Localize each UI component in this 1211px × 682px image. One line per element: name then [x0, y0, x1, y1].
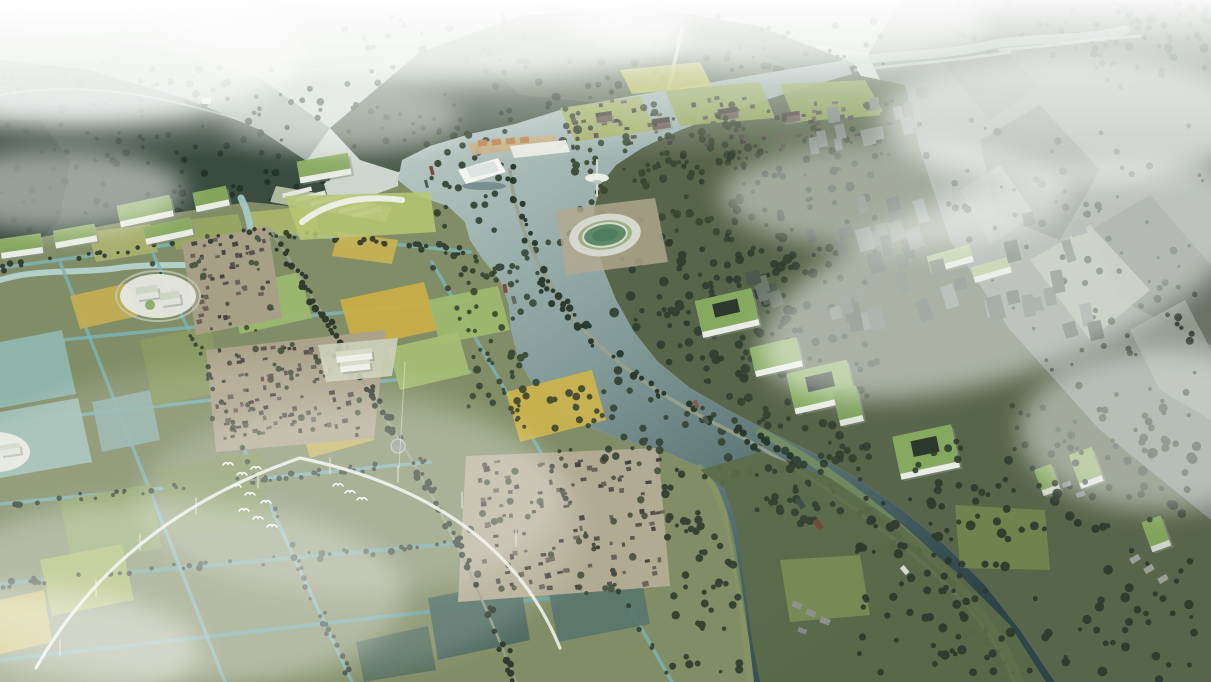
southeast-forest-tree	[1097, 597, 1104, 604]
southeast-forest-tree	[1103, 640, 1109, 646]
southeast-forest-tree	[1134, 606, 1142, 614]
riverfront-forest-south-tree	[772, 469, 777, 474]
diagonal-road-trees-tree	[505, 668, 510, 673]
southeast-forest-tree	[928, 522, 932, 526]
west-riverbank-trees-3-tree	[576, 416, 583, 423]
village-houses-mid-block	[308, 349, 313, 354]
park-forest-tree	[657, 311, 662, 316]
village-trees-south-tree	[654, 467, 661, 474]
southeast-forest-tree	[1003, 505, 1011, 513]
rendering-canvas	[0, 0, 1211, 682]
west-riverbank-trees-2-tree	[535, 271, 539, 275]
riverfront-forest-south-tree	[755, 507, 760, 512]
west-riverbank-trees-4-tree	[719, 670, 723, 674]
southeast-forest-tree	[1153, 591, 1158, 596]
southeast-forest-tree	[975, 514, 980, 519]
park-forest-tree	[614, 366, 623, 375]
park-forest-tree	[718, 356, 724, 362]
west-riverbank-trees-3-tree	[646, 445, 652, 451]
diagonal-road-trees-tree	[329, 319, 336, 326]
hedgerow-north-tree	[102, 254, 107, 259]
southeast-forest-tree	[989, 649, 997, 657]
village-houses-mid-block	[270, 345, 275, 349]
village-trees-mid-tree	[290, 342, 295, 347]
hedgerow-north-tree	[209, 239, 213, 243]
southeast-forest-tree	[907, 574, 916, 583]
west-riverbank-trees-tree	[481, 201, 488, 208]
west-riverbank-trees-2-tree	[483, 273, 489, 279]
village-trees-north-tree	[236, 264, 239, 267]
southeast-forest-tree	[958, 561, 965, 568]
west-riverbank-trees-tree	[442, 224, 447, 229]
riverfront-forest-south-tree	[862, 442, 871, 451]
village-trees-mid-tree	[278, 347, 285, 354]
village-houses-south-block	[611, 554, 617, 560]
west-riverbank-trees-3-tree	[572, 393, 580, 401]
southeast-forest-tree	[960, 613, 969, 622]
park-forest-tree	[817, 247, 822, 252]
riverfront-forest-south-tree	[817, 469, 823, 475]
hedgerow-north-tree	[135, 245, 140, 250]
park-forest-tree	[571, 167, 579, 175]
west-riverbank-trees-4-tree	[695, 510, 701, 516]
west-riverbank-trees-tree	[491, 227, 497, 233]
park-forest-tree	[764, 422, 772, 430]
village-houses-south-block	[591, 467, 597, 472]
west-riverbank-trees-2-tree	[508, 281, 514, 287]
west-riverbank-trees-3-tree	[627, 387, 633, 393]
west-riverbank-trees-tree	[484, 194, 488, 198]
west-riverbank-trees-4-tree	[722, 626, 726, 630]
west-riverbank-trees-tree	[470, 268, 476, 274]
southeast-forest-tree	[1010, 403, 1015, 408]
diagonal-road-trees-tree	[303, 274, 308, 279]
riverside-road-trees-tree	[612, 355, 616, 359]
southeast-forest-tree	[944, 444, 952, 452]
town-trees-tree	[677, 160, 681, 164]
southeast-forest-tree	[997, 528, 1007, 538]
village-houses-north-block	[220, 274, 225, 278]
hedgerow-north-tree	[18, 259, 24, 265]
southeast-forest-tree	[955, 482, 962, 489]
park-forest-tree	[732, 217, 737, 222]
village-trees-north-tree	[225, 302, 229, 306]
riverfront-forest-south-tree	[837, 507, 844, 514]
west-riverbank-trees-4-tree	[667, 484, 673, 490]
park-forest-tree	[686, 310, 691, 315]
southeast-forest-tree	[1187, 558, 1194, 565]
park-forest-tree	[700, 406, 705, 411]
southeast-forest-tree	[984, 655, 990, 661]
hedgerow-north-tree	[242, 229, 246, 233]
southeast-forest-tree	[989, 667, 997, 675]
park-forest-tree	[740, 335, 746, 341]
park-forest-tree	[757, 420, 762, 425]
southeast-forest-tree	[1103, 565, 1113, 575]
left-mountain-trees-tree	[201, 170, 208, 177]
meadow-clearing	[780, 555, 870, 622]
southeast-forest-tree	[1064, 655, 1068, 659]
west-riverbank-trees-4-tree	[661, 490, 669, 498]
southeast-forest-tree	[956, 519, 961, 524]
riverfront-forest-south-tree	[858, 477, 862, 481]
riverside-road-trees-tree	[510, 164, 516, 170]
hedgerow-north-tree	[283, 230, 289, 236]
park-forest-tree	[659, 175, 667, 183]
southeast-forest-tree	[881, 501, 886, 506]
southeast-forest-tree	[935, 479, 943, 487]
southeast-forest-tree	[899, 581, 904, 586]
southeast-forest-tree	[1044, 629, 1053, 638]
village-trees-north-tree	[244, 325, 249, 330]
west-riverbank-trees-4-tree	[669, 663, 676, 670]
southeast-forest-tree	[923, 586, 931, 594]
riverfront-forest-south-tree	[765, 464, 773, 472]
hedgerow-steep-2-tree	[515, 408, 520, 413]
west-riverbank-trees-3-tree	[551, 425, 558, 432]
southeast-forest-tree	[930, 449, 937, 456]
riverside-road-trees-tree	[773, 445, 780, 452]
west-riverbank-trees-4-tree	[723, 581, 729, 587]
park-forest-tree	[705, 378, 711, 384]
west-riverbank-trees-2-tree	[515, 279, 519, 283]
riverside-road-trees-tree	[551, 288, 556, 293]
park-forest-tree	[828, 441, 832, 445]
park-forest-tree	[743, 349, 749, 355]
village-trees-north-tree	[210, 327, 213, 330]
west-riverbank-trees-2-tree	[498, 324, 505, 331]
village-houses-south-block	[657, 557, 661, 562]
park-forest-tree	[766, 310, 770, 314]
hedgerow-north-tree	[7, 260, 13, 266]
left-mountain-trees-tree	[293, 184, 299, 190]
west-riverbank-trees-2-tree	[473, 366, 481, 374]
southeast-forest-tree	[955, 634, 961, 640]
west-riverbank-trees-2-tree	[489, 271, 495, 277]
southeast-forest-tree	[938, 587, 945, 594]
west-riverbank-trees-2-tree	[489, 339, 494, 344]
hedgerow-steep-2-tree	[592, 543, 596, 547]
riverside-road-trees-tree	[656, 393, 660, 397]
right-mountain-pines-tree	[1125, 346, 1131, 352]
west-riverbank-trees-4-tree	[682, 571, 690, 579]
park-forest-tree	[710, 259, 718, 267]
hedgerow-steep-1-tree	[193, 343, 197, 347]
park-forest-tree	[678, 343, 683, 348]
southeast-forest-tree	[1091, 525, 1099, 533]
riverfront-forest-south-tree	[771, 493, 779, 501]
west-riverbank-trees-tree	[458, 272, 463, 277]
park-forest-tree	[666, 359, 673, 366]
hedgerow-steep-1-tree	[200, 346, 204, 350]
right-mountain-pines-tree	[1174, 313, 1182, 321]
hedgerow-steep-2-tree	[502, 391, 506, 395]
park-forest-tree	[683, 273, 690, 280]
park-forest-tree	[667, 323, 672, 328]
village-houses-north-block	[206, 286, 210, 290]
park-forest-tree	[638, 169, 646, 177]
village-houses-mid-block	[287, 347, 291, 351]
hedgerow-steep-2-tree	[516, 416, 521, 421]
southeast-forest-tree	[1018, 527, 1024, 533]
hedgerow-steep-1-tree	[150, 261, 155, 266]
riverside-road-trees-tree	[539, 289, 544, 294]
riverside-road-trees-tree	[561, 301, 567, 307]
park-forest-tree	[733, 275, 741, 283]
riverside-road-trees-tree	[528, 231, 533, 236]
riverfront-forest-south-tree	[792, 488, 798, 494]
southeast-forest-tree	[957, 573, 963, 579]
park-forest-tree	[600, 186, 608, 194]
aerial-masterplan-rendering	[0, 0, 1211, 682]
park-forest-tree	[709, 349, 719, 359]
village-trees-south-tree	[611, 475, 616, 480]
southeast-forest-tree	[993, 561, 999, 567]
west-riverbank-trees-2-tree	[486, 392, 492, 398]
southeast-forest-tree	[906, 609, 913, 616]
riverside-road-trees-tree	[686, 401, 693, 408]
village-trees-north-tree	[246, 252, 249, 255]
riverside-road-trees-tree	[591, 344, 595, 348]
village-trees-north-tree	[267, 304, 274, 311]
southeast-forest-tree	[886, 522, 896, 532]
west-riverbank-trees-tree	[461, 266, 468, 273]
village-houses-south-block	[645, 480, 651, 484]
southeast-forest-tree	[1004, 456, 1013, 465]
riverside-road-trees-tree	[655, 389, 660, 394]
west-riverbank-trees-tree	[429, 176, 433, 180]
hedgerow-steep-2-tree	[522, 425, 526, 429]
riverfront-forest-south-tree	[755, 473, 759, 477]
west-riverbank-trees-3-tree	[573, 404, 577, 408]
park-forest-tree	[589, 199, 595, 205]
west-riverbank-trees-4-tree	[711, 533, 718, 540]
village-ground-north	[182, 226, 282, 335]
west-riverbank-trees-3-tree	[663, 415, 668, 420]
diagonal-road-trees-tree	[275, 248, 279, 252]
riverfront-forest-south-tree	[796, 464, 801, 469]
park-forest-tree	[681, 164, 686, 169]
right-mountain-pines-tree	[1070, 363, 1073, 366]
west-riverbank-trees-3-tree	[594, 408, 600, 414]
west-riverbank-trees-4-tree	[678, 470, 686, 478]
park-forest-tree	[685, 338, 694, 347]
southeast-forest-tree	[872, 550, 876, 554]
park-forest-tree	[687, 173, 694, 180]
riverfront-forest-south-tree	[791, 456, 798, 463]
hedgerow-north-tree	[252, 227, 256, 231]
riverfront-forest-south-tree	[805, 480, 811, 486]
hedgerow-north-tree	[293, 236, 297, 240]
diagonal-road-trees-tree	[330, 331, 334, 335]
southeast-forest-tree	[1152, 652, 1161, 661]
park-forest-tree	[702, 282, 709, 289]
west-riverbank-trees-4-tree	[734, 594, 741, 601]
village-trees-mid-tree	[235, 353, 239, 357]
southeast-forest-tree	[1145, 619, 1151, 625]
park-forest-tree	[718, 438, 726, 446]
southeast-forest-tree	[1125, 618, 1133, 626]
riverfront-forest-south-tree	[830, 501, 836, 507]
west-riverbank-trees-tree	[434, 209, 441, 216]
right-mountain-pines-tree	[1175, 321, 1180, 326]
park-forest-tree	[735, 251, 742, 258]
southeast-forest-tree	[924, 570, 931, 577]
southeast-forest-tree	[954, 456, 962, 464]
southeast-forest-tree	[901, 543, 908, 550]
southeast-forest-tree	[938, 503, 945, 510]
village-trees-north-tree	[201, 295, 204, 298]
west-riverbank-trees-tree	[436, 241, 443, 248]
village-houses-south-block	[650, 511, 655, 516]
right-mountain-pines-tree	[1186, 337, 1194, 345]
village-trees-north-tree	[257, 238, 262, 243]
west-riverbank-trees-4-tree	[701, 549, 707, 555]
riverfront-forest-south-tree	[764, 496, 769, 501]
southeast-forest-tree	[1082, 615, 1091, 624]
southeast-forest-tree	[1012, 447, 1016, 451]
southeast-forest-tree	[1006, 628, 1016, 638]
diagonal-road-trees-tree	[312, 305, 320, 313]
left-mountain-trees-tree	[231, 184, 235, 188]
west-riverbank-trees-2-tree	[515, 265, 519, 269]
southeast-forest-tree	[981, 561, 988, 568]
west-riverbank-trees-2-tree	[524, 394, 529, 399]
hedgerow-north-tree	[1, 268, 7, 274]
southeast-forest-tree	[1027, 668, 1033, 674]
park-forest-tree	[699, 246, 705, 252]
park-forest-tree	[699, 169, 705, 175]
hedgerow-steep-2-tree	[610, 568, 616, 574]
west-riverbank-trees-2-tree	[492, 311, 498, 317]
southeast-forest-tree	[1015, 425, 1020, 430]
park-forest-tree	[661, 307, 666, 312]
west-riverbank-trees-2-tree	[476, 383, 483, 390]
village-houses-south-block	[609, 542, 612, 546]
west-riverbank-trees-4-tree	[684, 518, 691, 525]
southeast-forest-tree	[1018, 410, 1023, 415]
park-forest-tree	[674, 228, 678, 232]
southeast-forest-tree	[1003, 477, 1008, 482]
park-forest-tree	[657, 294, 663, 300]
hedgerow-steep-2-tree	[615, 589, 621, 595]
hedgerow-steep-2-tree	[613, 583, 616, 586]
park-forest-tree	[835, 431, 844, 440]
southeast-forest-tree	[915, 462, 921, 468]
west-riverbank-trees-tree	[442, 181, 449, 188]
southeast-forest-tree	[1000, 562, 1010, 572]
west-riverbank-trees-2-tree	[471, 355, 475, 359]
scene-layers	[0, 0, 1211, 682]
southeast-forest-tree	[1170, 610, 1176, 616]
riverfront-forest-south-tree	[776, 507, 784, 515]
hedgerow-north-tree	[406, 243, 412, 249]
park-forest-tree	[727, 237, 731, 241]
riverside-road-trees-tree	[539, 279, 544, 284]
riverside-road-trees-tree	[573, 313, 577, 317]
diagonal-road-trees-tree	[278, 241, 284, 247]
hedgerow-steep-2-tree	[466, 328, 470, 332]
riverside-road-trees-tree	[510, 177, 517, 184]
southeast-forest-tree	[912, 467, 918, 473]
park-forest-tree	[724, 453, 733, 462]
southeast-forest-tree	[969, 668, 977, 676]
west-riverbank-trees-4-tree	[684, 529, 688, 533]
west-riverbank-trees-3-tree	[630, 446, 634, 450]
southeast-forest-tree	[894, 638, 899, 643]
southeast-forest-tree	[1145, 561, 1149, 565]
west-riverbank-trees-2-tree	[507, 270, 512, 275]
southeast-forest-tree	[993, 517, 1001, 525]
west-riverbank-trees-4-tree	[701, 600, 709, 608]
park-forest-tree	[735, 340, 744, 349]
west-riverbank-trees-2-tree	[467, 310, 472, 315]
west-riverbank-trees-2-tree	[524, 294, 530, 300]
west-riverbank-trees-4-tree	[729, 601, 737, 609]
southeast-forest-tree	[931, 533, 936, 538]
diagonal-road-trees-tree	[283, 251, 288, 256]
west-riverbank-trees-2-tree	[519, 385, 527, 393]
village-houses-north-block	[230, 262, 236, 268]
park-forest-tree	[666, 240, 673, 247]
village-houses-south-block	[626, 467, 631, 472]
hedgerow-north-tree	[87, 252, 91, 256]
southeast-forest-tree	[1030, 465, 1036, 471]
southeast-forest-tree	[1122, 627, 1128, 633]
diagonal-road-trees-tree	[508, 648, 513, 653]
park-forest-tree	[754, 328, 761, 335]
hedgerow-north-tree	[357, 240, 363, 246]
park-forest-tree	[695, 218, 703, 226]
park-forest-tree	[703, 365, 709, 371]
riverside-road-trees-tree	[566, 304, 573, 311]
village-houses-north-block	[221, 250, 225, 255]
park-forest-tree	[629, 266, 636, 273]
park-forest-tree	[626, 291, 636, 301]
west-riverbank-trees-3-tree	[552, 396, 558, 402]
diagonal-road-trees-tree	[274, 234, 278, 238]
village-trees-north-tree	[189, 263, 195, 269]
west-riverbank-trees-4-tree	[697, 522, 705, 530]
west-riverbank-trees-tree	[492, 190, 499, 197]
riverfront-forest-south-tree	[797, 520, 804, 527]
riverfront-forest-south-tree	[820, 459, 828, 467]
village-houses-north-block	[202, 244, 206, 248]
riverside-road-trees-tree	[546, 279, 550, 283]
southeast-forest-tree	[937, 650, 943, 656]
riverside-road-trees-tree	[505, 176, 510, 181]
southeast-forest-tree	[1052, 489, 1062, 499]
village-trees-south-tree	[637, 461, 642, 466]
west-riverbank-trees-4-tree	[664, 534, 671, 541]
park-forest-tree	[786, 416, 791, 421]
west-riverbank-trees-4-tree	[670, 592, 677, 599]
west-riverbank-trees-4-tree	[675, 524, 679, 528]
west-riverbank-trees-3-tree	[569, 448, 573, 452]
left-mountain-trees-tree	[180, 201, 184, 205]
park-forest-tree	[741, 356, 746, 361]
west-riverbank-trees-2-tree	[517, 308, 524, 315]
hedgerow-north-tree	[381, 241, 385, 245]
village-trees-south-tree	[559, 456, 563, 460]
southeast-forest-tree	[1005, 536, 1012, 543]
hedgerow-north-tree	[443, 245, 449, 251]
riverside-road-trees-tree	[555, 292, 563, 300]
southeast-forest-tree	[884, 612, 890, 618]
west-riverbank-trees-2-tree	[510, 370, 515, 375]
southeast-forest-tree	[1190, 629, 1198, 637]
hedgerow-north-tree	[457, 245, 463, 251]
